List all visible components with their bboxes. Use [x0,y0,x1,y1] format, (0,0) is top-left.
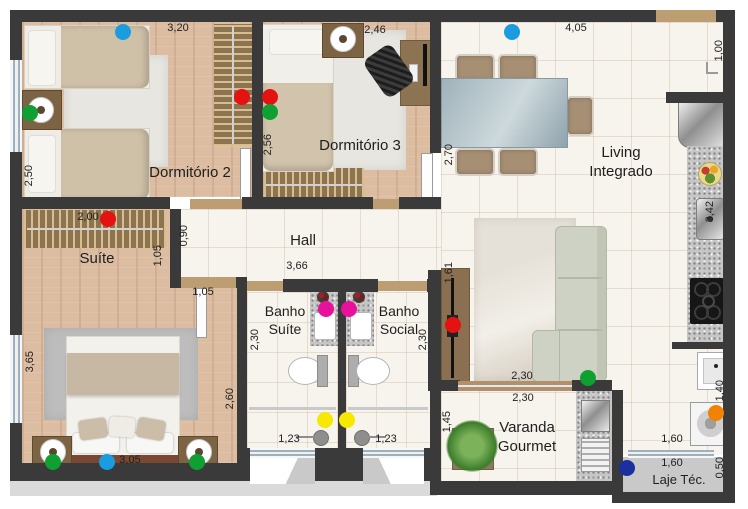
label-living: Living Integrado [571,143,671,181]
dim-hall-width: 3,66 [277,260,317,272]
wall-dorm2-hall [22,197,170,209]
label-hall: Hall [263,231,343,250]
banho-suite-door [247,281,283,291]
grill [581,438,610,472]
label-living-line1: Living [571,143,671,162]
dim-laje-depth: 0,50 [714,457,726,478]
label-dorm2: Dormitório 2 [130,163,250,182]
banho-social-shower-glass [348,407,428,410]
dorm3-monitor [423,44,427,86]
dim-varanda-width: 2,30 [503,392,543,404]
wall-dorm2-corner [242,197,263,209]
dim-dorm3-depth: 2,56 [262,134,274,155]
suite-window [10,335,22,423]
dorm3-lamp [330,26,356,52]
dorm2-door [190,199,242,209]
banho-suite-shower-head [313,430,329,446]
marker-magenta-banho-suite-sink[interactable] [318,301,334,317]
dim-banho-suite-width: 1,23 [269,433,309,445]
banho-suite-window-sill [250,458,315,484]
marker-green-living-sofa[interactable] [580,370,596,386]
sofa-back [597,227,606,381]
dorm2-window [10,60,22,152]
label-varanda-line1: Varanda [477,418,577,437]
marker-navy-laje-tec[interactable] [619,460,635,476]
dining-chair [566,96,594,136]
banho-social-window-sill [363,458,424,484]
dining-chair [455,148,495,176]
marker-green-dorm3-bed[interactable] [262,104,278,120]
wall-dorm3-living [430,22,441,153]
label-dorm3: Dormitório 3 [300,136,420,155]
wall-dorm3-hall-b [399,197,441,209]
label-laje: Laje Téc. [639,470,719,489]
fruit-bowl [698,162,722,186]
marker-red-dorm2-wardrobe[interactable] [234,89,250,105]
dim-suite-door: 1,05 [183,286,223,298]
wall-banho-top [283,279,378,292]
floor-plan: Dormitório 2 Dormitório 3 Living Integra… [0,0,748,509]
dim-banho-social-depth: 2,30 [417,329,429,350]
label-varanda-line2: Gourmet [477,437,577,456]
dim-laundry-depth: 1,40 [714,380,726,401]
entry-door-swing-mark [706,62,718,74]
banho-social-door [378,281,427,291]
banho-suite-window [250,448,315,458]
dim-laje-width: 1,60 [652,457,692,469]
wall-top [10,10,735,22]
pillow [108,416,135,438]
marker-green-suite-nightstand-right[interactable] [189,454,205,470]
suite-bed [66,336,180,460]
dim-banho-social-width: 1,23 [366,433,406,445]
marker-green-dorm2-nightstand[interactable] [22,105,38,121]
dorm2-bed-1 [24,25,150,89]
pillow [28,30,56,86]
label-living-line2: Integrado [571,162,671,181]
dim-sofa-front: 2,30 [502,370,542,382]
wall-banho-bottom-right [424,448,441,481]
dining-chair [498,148,538,176]
marker-red-suite-wardrobe[interactable] [100,211,116,227]
label-banho-suite-line1: Banho [245,302,325,320]
dim-dorm2-width: 3,20 [158,22,198,34]
dining-table [441,78,568,148]
dim-living-depth: 2,70 [443,144,455,165]
banho-social-toilet [356,357,390,385]
sofa [555,226,607,382]
wall-varanda-bottom [430,481,623,495]
varanda-window-glass [458,385,572,387]
dim-suite-bed-width: 3,05 [110,454,150,466]
wall-varanda-right [612,390,623,495]
sofa-seam [558,277,602,279]
dim-laundry-width: 1,60 [652,433,692,445]
marker-green-suite-nightstand-left[interactable] [45,454,61,470]
wall-laje-bottom [612,492,735,503]
label-suite: Suíte [57,249,137,268]
wall-kitchen-stub [666,92,735,103]
dim-hall-side: 0,90 [178,225,190,246]
wall-suite-corner [236,277,247,288]
marker-red-dorm3-bed[interactable] [262,89,278,105]
marker-blue-suite-bed[interactable] [99,454,115,470]
cooktop [690,278,724,324]
dim-banho-suite-depth: 2,30 [249,329,261,350]
varanda-cooker [581,400,610,432]
dim-living-width: 4,05 [556,22,596,34]
marker-yellow-banho-suite-shower[interactable] [317,412,333,428]
fridge [678,100,729,148]
dim-dorm2-depth: 2,50 [23,165,35,186]
pillow [78,417,109,441]
marker-orange-washing-machine[interactable] [708,405,724,421]
banho-suite-shower-glass [249,407,336,410]
blanket [67,353,179,395]
dim-varanda-depth: 1,45 [441,411,453,432]
wall-banho-bottom-center [315,448,363,481]
dim-tv-wall: 1,61 [443,262,455,283]
dim-suite-side: 2,60 [224,388,236,409]
marker-yellow-banho-social-shower[interactable] [339,412,355,428]
label-varanda: Varanda Gourmet [477,418,577,456]
marker-blue-living-dining[interactable] [504,24,520,40]
wall-laundry-stub [672,342,723,349]
dim-kitchen-counter: 3,42 [704,201,716,222]
sofa-seam [558,329,602,331]
marker-red-living-tv[interactable] [445,317,461,333]
wall-hall-left-corner [170,277,181,288]
dim-suite-nook: 1,05 [152,245,164,266]
varanda-window-sill [458,381,572,391]
dorm3-door [373,199,399,209]
entry-door [656,10,716,22]
label-banho-social-line1: Banho [359,302,439,320]
marker-blue-dorm2-bed[interactable] [115,24,131,40]
dorm2-wardrobe [214,24,252,146]
banho-social-window [363,448,424,458]
pillow [269,29,329,55]
burner [702,295,715,308]
dim-dorm3-width: 2,46 [355,24,395,36]
blanket [61,26,149,88]
dim-entry-side: 1,00 [713,40,725,61]
marker-magenta-banho-social-sink[interactable] [341,301,357,317]
wall-banho-bottom-left [237,448,250,481]
banho-suite-toilet-tank [317,355,328,387]
tank-faucet [714,364,718,368]
wall-dorm3-hall [263,197,373,209]
dim-suite-depth: 3,65 [24,351,36,372]
